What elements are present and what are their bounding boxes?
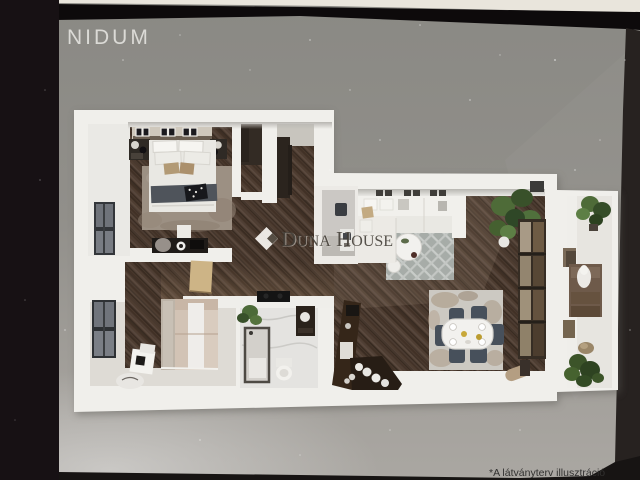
svg-text:NIDUM: NIDUM	[67, 26, 151, 49]
svg-text:*A látványterv illusztráció: *A látványterv illusztráció	[489, 467, 605, 479]
